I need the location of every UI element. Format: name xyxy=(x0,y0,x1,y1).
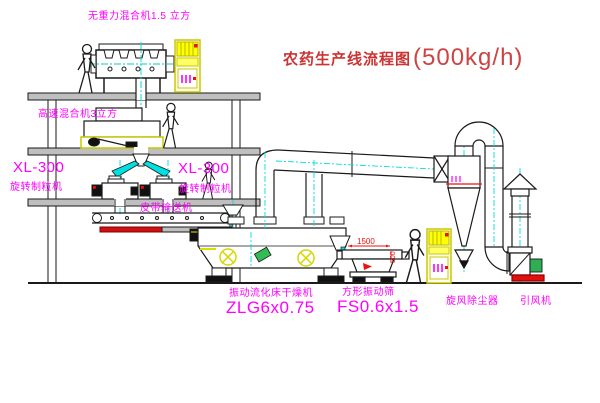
label-granulator-left-model: XL-300 xyxy=(13,160,64,176)
label-high-speed-mixer: 高速混合机3立方 xyxy=(38,110,118,121)
label-belt-conveyor: 皮带输送机 xyxy=(140,204,193,215)
cad-flow-diagram-canvas: 农药生产线流程图 (500kg/h) 无重力混合机1.5 立方 高速混合机3立方… xyxy=(0,0,600,403)
belt-conveyor xyxy=(92,213,230,223)
induced-draft-fan-and-stack xyxy=(504,168,544,282)
diagram-title: 农药生产线流程图 (500kg/h) xyxy=(283,44,523,72)
label-gravity-mixer: 无重力混合机1.5 立方 xyxy=(88,12,191,23)
exhaust-ducting xyxy=(256,150,450,228)
label-dryer-model: ZLG6x0.75 xyxy=(226,299,315,317)
control-cabinet-ground xyxy=(427,229,451,283)
dimension-sieve-height: 500 xyxy=(390,251,397,263)
title-text: 农药生产线流程图 xyxy=(283,48,411,69)
label-granulator-right-name: 旋转制粒机 xyxy=(179,185,232,196)
operator-figure-mixer-floor xyxy=(163,103,179,148)
title-capacity: (500kg/h) xyxy=(413,44,523,72)
control-cabinet-top xyxy=(175,40,200,92)
label-fan: 引风机 xyxy=(520,297,552,308)
label-cyclone: 旋风除尘器 xyxy=(446,297,499,308)
label-granulator-right-model: XL-300 xyxy=(178,161,229,177)
cyclone-separator xyxy=(446,122,509,272)
dimension-sieve-length: 1500 xyxy=(357,237,375,246)
label-granulator-left-name: 旋转制粒机 xyxy=(10,183,63,194)
label-sieve-model: FS0.6x1.5 xyxy=(337,298,419,316)
